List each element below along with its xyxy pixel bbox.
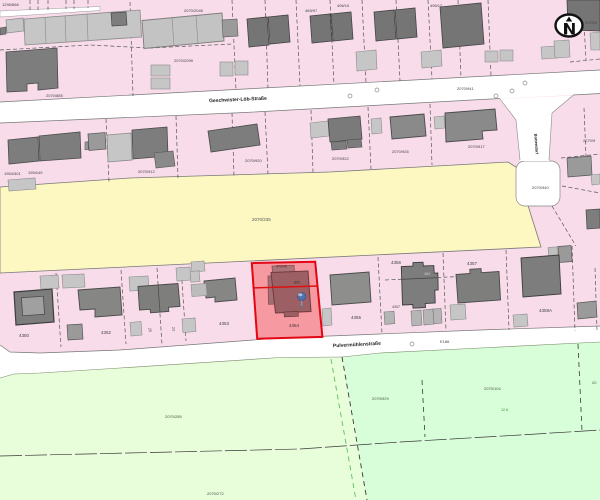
svg-text:4354: 4354 [289, 323, 300, 328]
svg-text:2070/285: 2070/285 [165, 414, 182, 419]
svg-text:2070/920: 2070/920 [245, 158, 262, 163]
svg-text:479/40: 479/40 [276, 265, 287, 269]
svg-text:2070/941: 2070/941 [457, 86, 474, 91]
svg-text:2070/235: 2070/235 [252, 217, 271, 222]
svg-text:2070/2099: 2070/2099 [174, 58, 194, 63]
svg-text:2070/922: 2070/922 [332, 156, 349, 161]
svg-text:25: 25 [148, 328, 152, 333]
svg-text:1295/868: 1295/868 [2, 2, 19, 7]
svg-text:2070/272: 2070/272 [207, 491, 224, 496]
svg-text:496/10: 496/10 [337, 3, 350, 8]
svg-text:4357: 4357 [467, 261, 478, 266]
svg-text:4353: 4353 [219, 321, 230, 326]
svg-text:2070/926: 2070/926 [392, 149, 409, 154]
svg-text:2070/917: 2070/917 [468, 144, 485, 149]
svg-text:484: 484 [424, 272, 430, 276]
svg-text:496/12: 496/12 [430, 3, 443, 8]
svg-text:2270/9: 2270/9 [583, 138, 596, 143]
svg-text:2070/104: 2070/104 [484, 386, 501, 391]
svg-text:1954/49: 1954/49 [28, 170, 43, 175]
svg-text:12 A: 12 A [501, 408, 509, 412]
svg-text:E186: E186 [440, 339, 450, 344]
svg-text:2070/2045: 2070/2045 [184, 8, 204, 13]
svg-text:2070/885: 2070/885 [46, 93, 63, 98]
svg-text:20: 20 [592, 380, 597, 385]
svg-text:4307: 4307 [392, 305, 400, 309]
svg-text:2070/912: 2070/912 [138, 169, 155, 174]
svg-text:2070/9: 2070/9 [585, 20, 598, 25]
svg-text:805: 805 [294, 281, 300, 285]
svg-text:4358A: 4358A [539, 308, 552, 313]
svg-text:23: 23 [171, 327, 175, 332]
svg-text:4350: 4350 [19, 333, 30, 338]
svg-text:1954/301: 1954/301 [4, 171, 21, 176]
svg-text:2070/929: 2070/929 [372, 396, 389, 401]
svg-text:4355: 4355 [351, 315, 362, 320]
svg-text:2070/940: 2070/940 [532, 185, 549, 190]
svg-text:4356: 4356 [391, 260, 402, 265]
svg-text:4352: 4352 [101, 330, 112, 335]
svg-text:489/97: 489/97 [305, 8, 318, 13]
